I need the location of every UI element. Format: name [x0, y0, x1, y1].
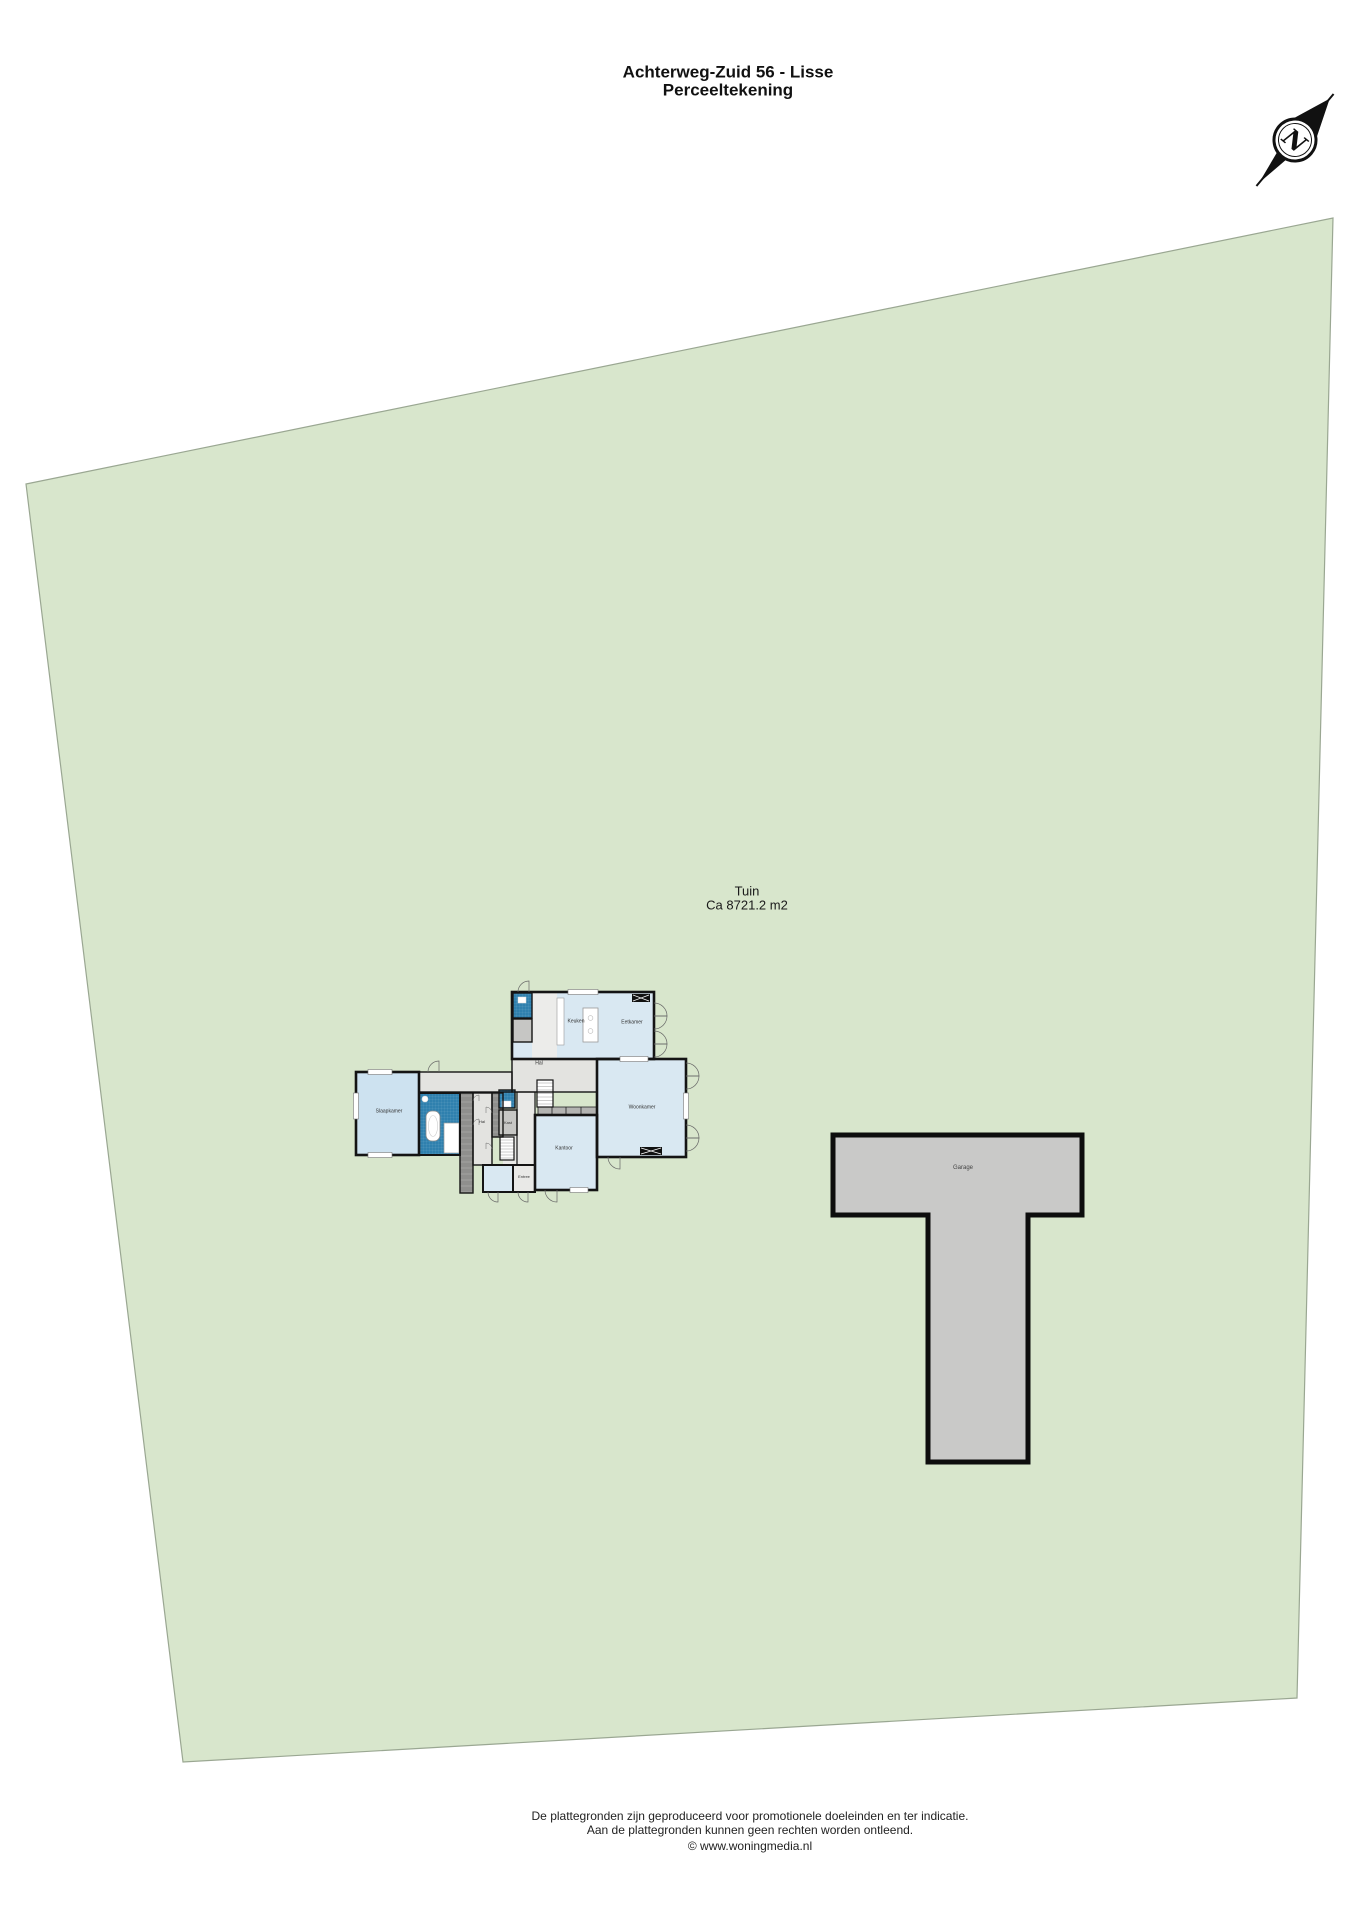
footer-copyright: © www.woningmedia.nl: [688, 1840, 812, 1852]
wardrobe-strip-left: [460, 1093, 473, 1193]
room-label-entry: Entree: [518, 1175, 530, 1179]
room-label-hall-left: Hal: [479, 1120, 485, 1124]
stairs-left: [500, 1137, 514, 1160]
plot-drawing: N: [0, 0, 1358, 1920]
room-label-kitchen: Keuken: [568, 1020, 585, 1025]
room-storage-top: [513, 1019, 532, 1042]
kitchen-counter-zone: [532, 993, 557, 1058]
room-label-closet: Kast: [504, 1121, 512, 1125]
room-utility: [483, 1165, 513, 1192]
bathroom-sink: [422, 1096, 428, 1102]
garden-parcel-polygon: [26, 218, 1333, 1762]
page-title: Achterweg-Zuid 56 - Lisse: [623, 64, 834, 81]
room-label-bedroom: Slaapkamer: [376, 1110, 403, 1115]
hall-left-upper-floor: [419, 1072, 512, 1092]
island-sink-1: [588, 1016, 593, 1021]
footer-disclaimer-2: Aan de plattegronden kunnen geen rechten…: [587, 1824, 913, 1836]
toilet-top-sink: [518, 997, 526, 1003]
page-subtitle: Perceeltekening: [663, 82, 793, 99]
room-label-office: Kantoor: [555, 1147, 573, 1152]
garden-area-label: Ca 8721.2 m2: [706, 899, 788, 912]
hall-left-floor: [473, 1093, 492, 1165]
corridor-to-entry: [517, 1092, 535, 1165]
kitchen-island: [583, 1008, 598, 1042]
room-label-living: Woonkamer: [629, 1106, 656, 1111]
room-label-hall-top: Hal: [535, 1062, 543, 1067]
room-label-dining: Eetkamer: [621, 1021, 642, 1026]
room-office: [535, 1115, 597, 1190]
window-marker-living: [640, 1147, 662, 1155]
island-sink-2: [588, 1029, 593, 1034]
kitchen-counter: [557, 998, 564, 1045]
outbuilding-label: Garage: [953, 1165, 973, 1171]
perceeltekening-page: N Achterweg-Zuid 56 - Lisse Perceelteken…: [0, 0, 1358, 1920]
compass: N: [1240, 81, 1349, 200]
bathroom-cabinet: [444, 1123, 459, 1153]
footer-disclaimer-1: De plattegronden zijn geproduceerd voor …: [532, 1810, 969, 1822]
garden-name-label: Tuin: [735, 885, 760, 898]
hall-top-floor: [512, 1059, 597, 1092]
window-marker-kitchen: [632, 994, 650, 1002]
